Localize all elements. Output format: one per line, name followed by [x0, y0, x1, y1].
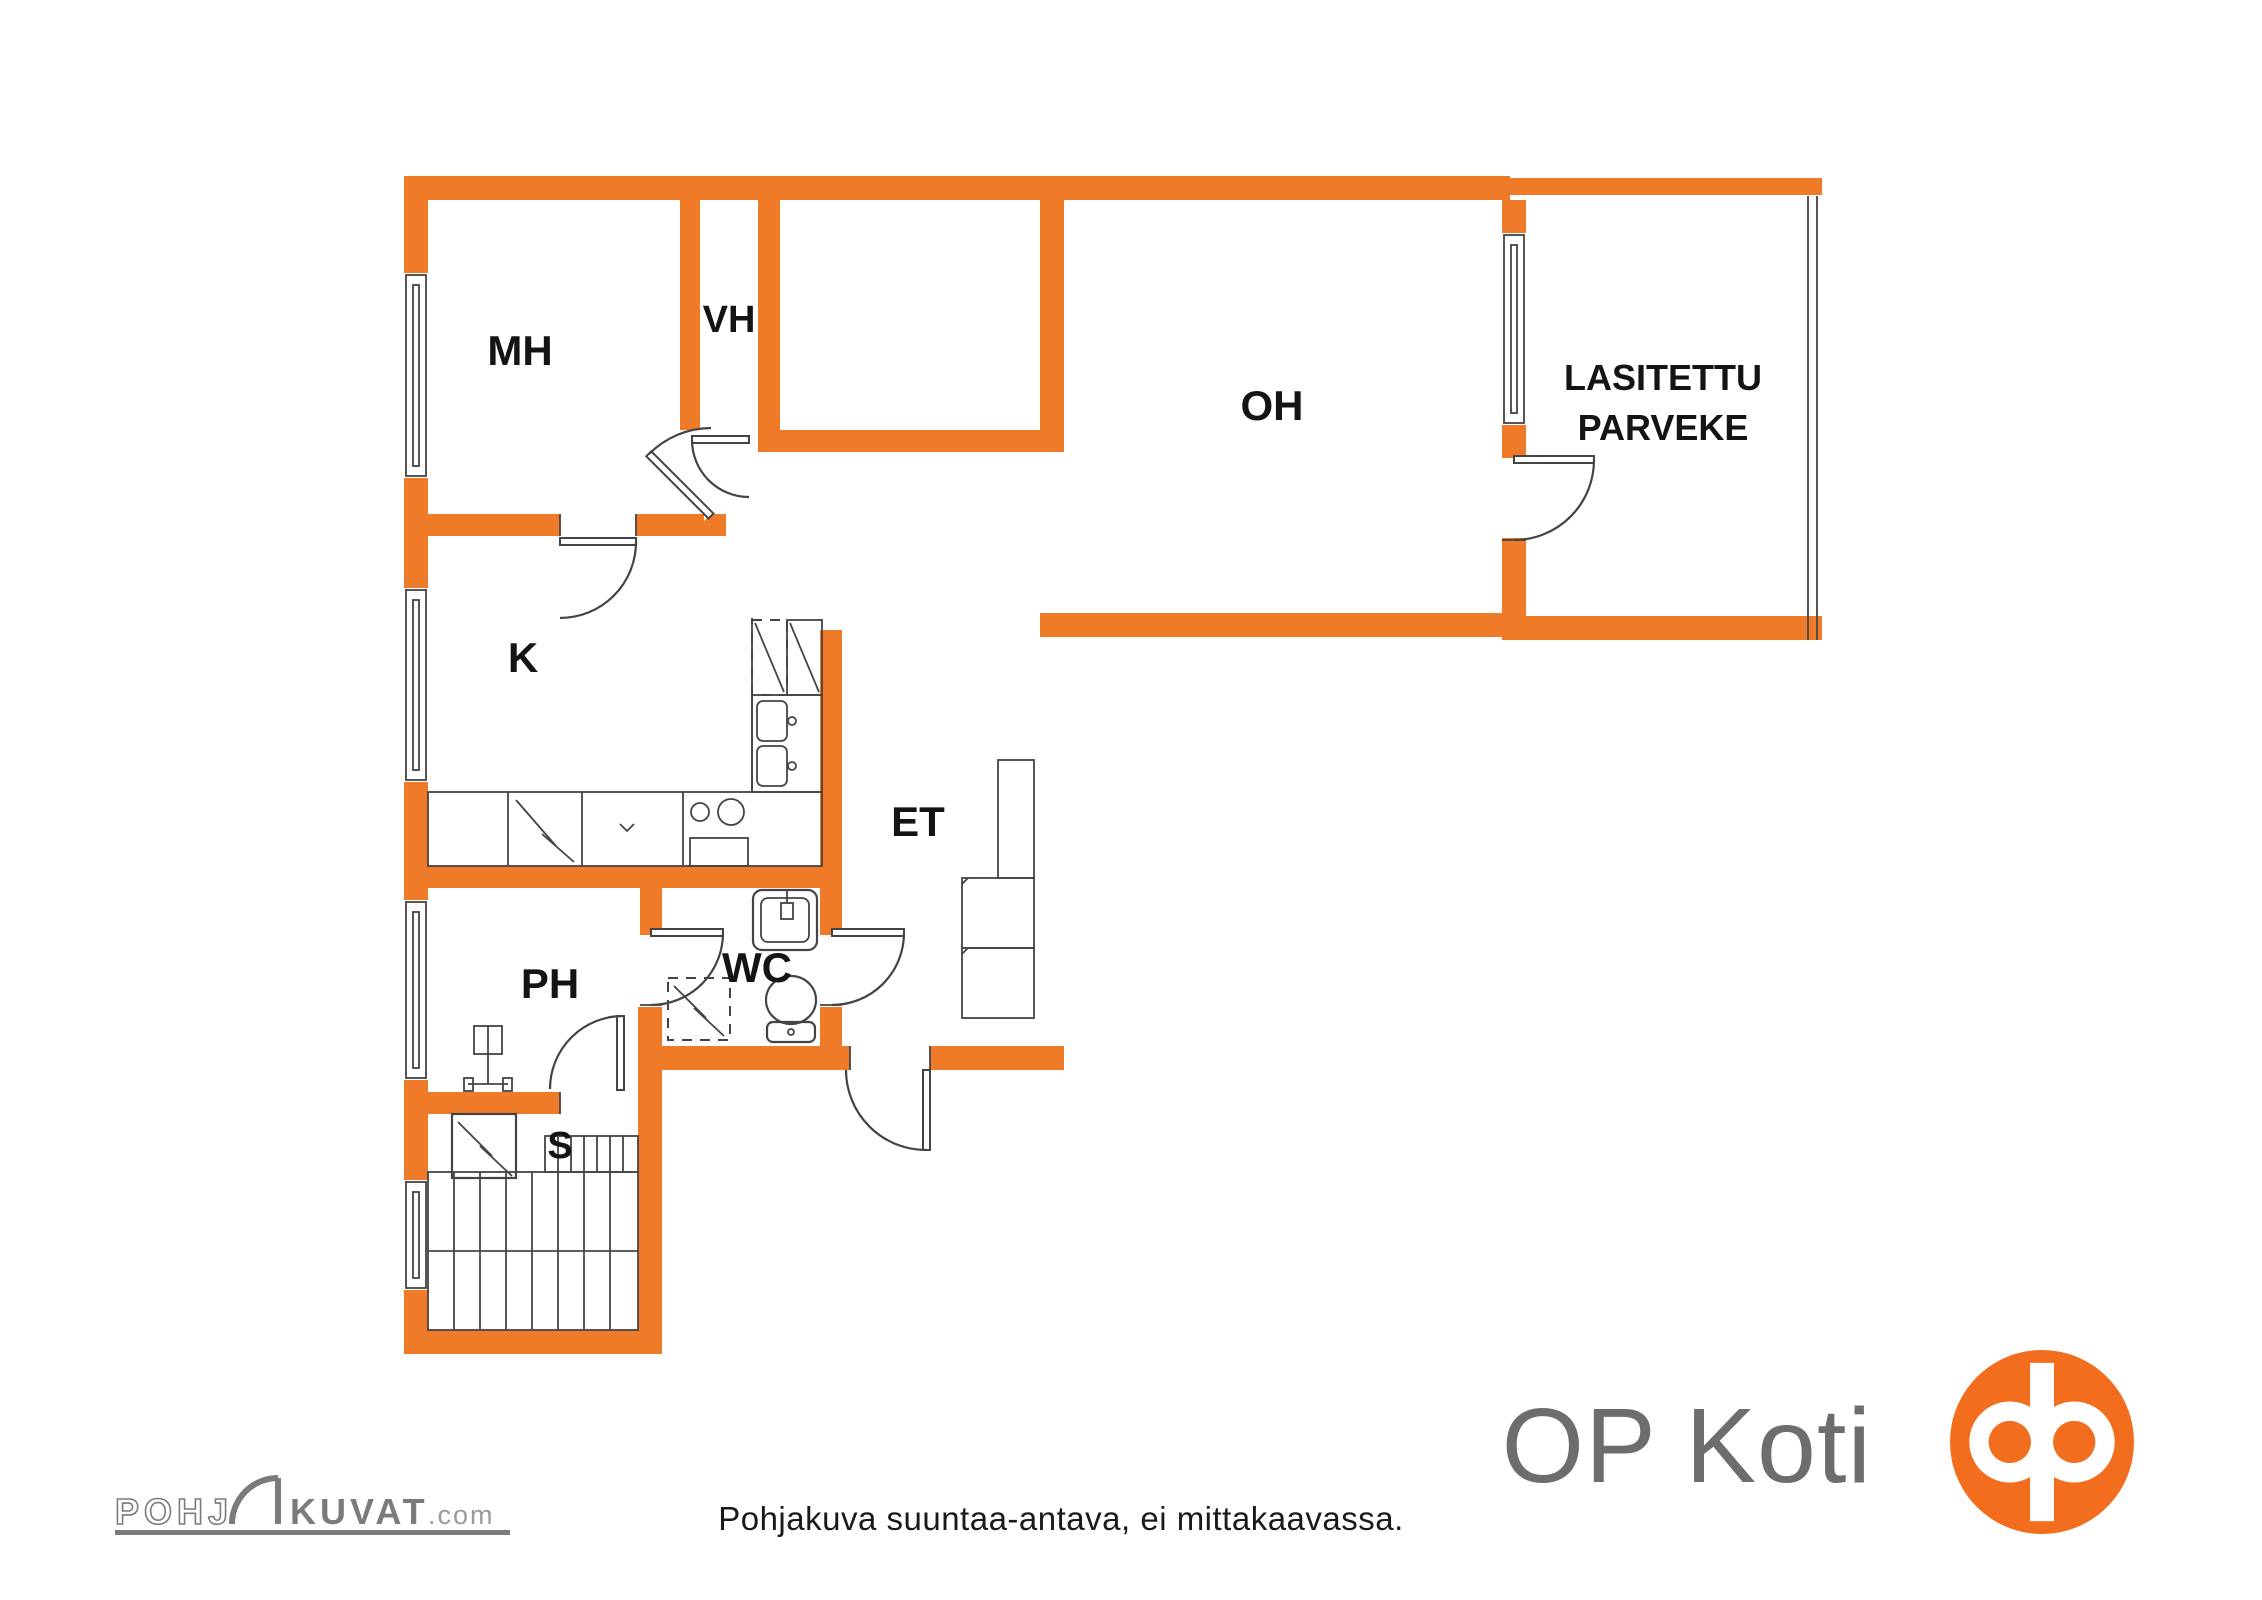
- walls: [404, 176, 1822, 1354]
- kitchen-door: [560, 514, 636, 618]
- washing-machine: [516, 800, 574, 862]
- pohjakuvat-part1: POHJ: [115, 1491, 233, 1532]
- balcony-glazing: [1808, 196, 1817, 640]
- pohjakuvat-part2: KUVAT: [290, 1491, 429, 1532]
- op-koti-brand: OP Koti: [1502, 1350, 2134, 1534]
- wc-sink: [753, 890, 817, 950]
- window-ph: [406, 902, 426, 1078]
- room-label-parveke-line1: LASITETTU: [1564, 357, 1762, 398]
- sauna-benches: [428, 1172, 638, 1330]
- wc-door-right: [820, 929, 904, 1005]
- disclaimer-text: Pohjakuva suuntaa-antava, ei mittakaavas…: [718, 1500, 1404, 1537]
- room-label-mh: MH: [487, 327, 552, 374]
- window-kitchen: [406, 590, 426, 780]
- pohjakuvat-watermark: POHJ KUVAT .com: [115, 1478, 510, 1535]
- room-label-oh: OH: [1241, 382, 1304, 429]
- kitchen-fixtures: [428, 618, 822, 866]
- room-labels: MH VH OH LASITETTU PARVEKE K ET WC PH S: [487, 299, 1762, 1167]
- floor-plan-canvas: MH VH OH LASITETTU PARVEKE K ET WC PH S …: [0, 0, 2262, 1600]
- vh-door: [692, 436, 749, 497]
- pohjakuvat-underline: [115, 1530, 510, 1535]
- sauna-fixtures: [428, 1114, 638, 1330]
- doors: [550, 428, 1594, 1150]
- room-label-parveke-line2: PARVEKE: [1578, 407, 1749, 448]
- window-sauna: [406, 1182, 426, 1288]
- room-label-vh: VH: [703, 299, 756, 341]
- window-mh: [406, 275, 426, 476]
- floor-plan-page: MH VH OH LASITETTU PARVEKE K ET WC PH S …: [0, 0, 2262, 1600]
- pohjakuvat-suffix: .com: [428, 1500, 495, 1530]
- shower-mixer: [464, 1026, 512, 1091]
- sauna-heater: [452, 1114, 516, 1178]
- entrance-door: [846, 1046, 930, 1150]
- sauna-door: [550, 1016, 624, 1114]
- room-label-s: S: [547, 1125, 572, 1167]
- kitchen-counter: [428, 792, 822, 866]
- room-label-k: K: [508, 634, 538, 681]
- op-logo-icon: [1950, 1350, 2134, 1534]
- ph-fixtures: [464, 1026, 512, 1091]
- kitchen-sink: [752, 695, 822, 792]
- op-koti-wordmark: OP Koti: [1502, 1387, 1872, 1505]
- room-label-wc: WC: [722, 944, 792, 991]
- room-label-ph: PH: [521, 960, 579, 1007]
- room-label-et: ET: [891, 798, 945, 845]
- stove: [690, 799, 748, 866]
- hall-closet: [962, 760, 1034, 1018]
- window-oh-balcony: [1504, 235, 1524, 423]
- balcony-door: [1502, 456, 1594, 540]
- door-arc-icon: [232, 1478, 278, 1524]
